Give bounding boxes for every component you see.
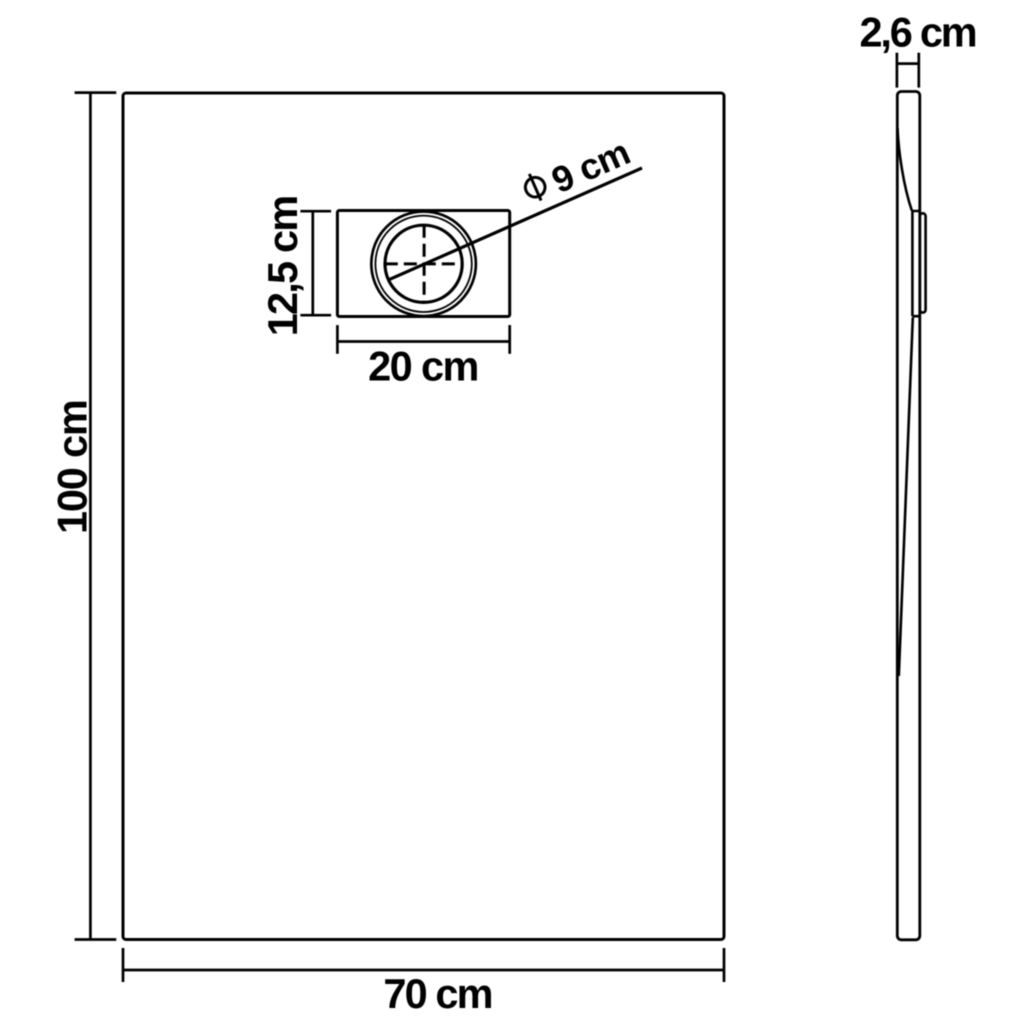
svg-text:12,5 cm: 12,5 cm (259, 197, 306, 337)
svg-text:70 cm: 70 cm (383, 970, 491, 1017)
svg-text:100 cm: 100 cm (49, 400, 96, 534)
svg-text:20 cm: 20 cm (368, 343, 478, 390)
svg-text:2,6 cm: 2,6 cm (859, 9, 975, 56)
